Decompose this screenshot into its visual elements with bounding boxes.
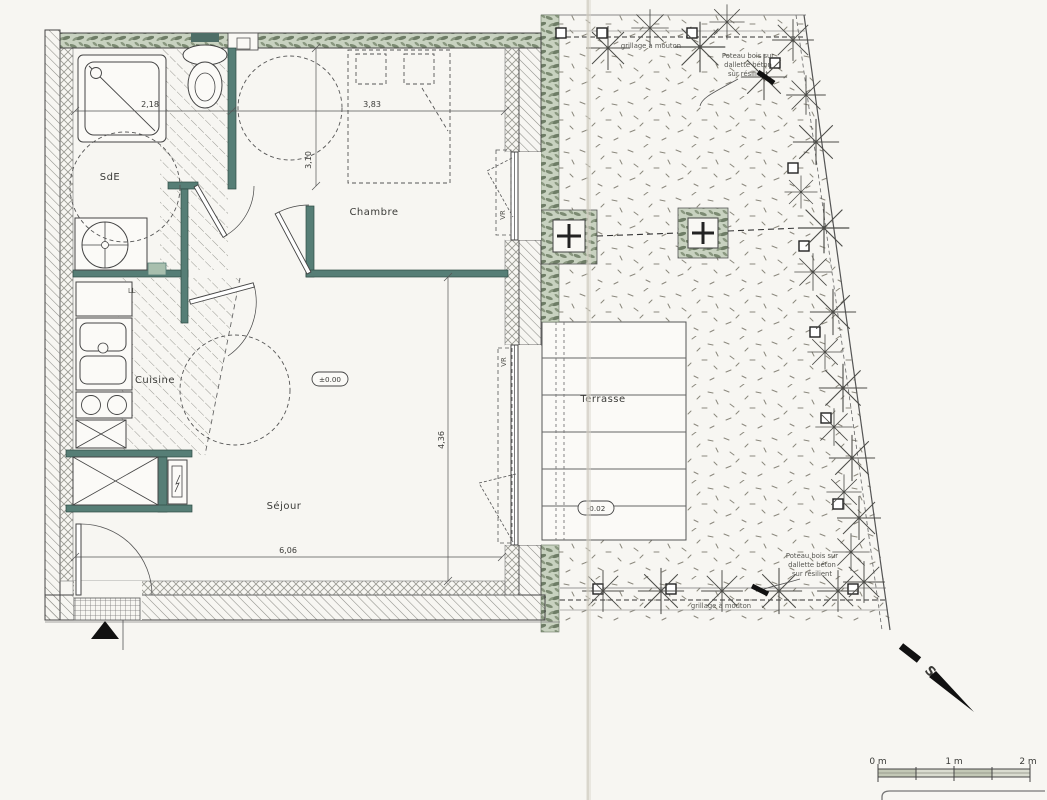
scale-label-2: 2 m (1019, 757, 1036, 767)
title-block-edge (882, 791, 1045, 800)
compass-tail (901, 646, 919, 660)
shutter-label-sejour: VR (500, 357, 508, 367)
dim-sde-width: 2,18 (141, 100, 159, 109)
duct-niche (228, 33, 258, 50)
scale-bar: 0 m 1 m 2 m (869, 757, 1045, 800)
wall-top (60, 33, 541, 48)
fence-label-bottom: grillage à mouton (691, 602, 751, 610)
shutter-label-chambre: VR (499, 210, 507, 220)
fence-label-top: grillage à mouton (621, 42, 681, 50)
fixture-label-washing-machine: LL (128, 287, 136, 295)
svg-text:sur résilient: sur résilient (792, 570, 832, 578)
svg-text:dallette béton: dallette béton (724, 61, 772, 69)
hedge-strip-upper (541, 15, 559, 322)
room-label-sde: SdE (100, 172, 121, 183)
entrance-arrow (91, 621, 119, 639)
level-value-interior: ±0.00 (319, 375, 341, 384)
scan-fold-line (586, 0, 591, 800)
dim-sejour-depth: 4,36 (437, 431, 446, 449)
scale-label-1: 1 m (945, 757, 962, 767)
post-planter-right (678, 208, 728, 258)
room-label-cuisine: Cuisine (135, 375, 175, 386)
level-marker-terrace: -0.02 (578, 501, 614, 515)
duct-block (148, 263, 166, 275)
electrical-panel (168, 460, 187, 504)
level-marker-interior: ±0.00 (312, 372, 348, 386)
entrance-door (74, 524, 152, 650)
svg-text:Poteau bois sur: Poteau bois sur (786, 552, 838, 560)
window-sejour (479, 345, 541, 545)
wall-left-outer (45, 30, 60, 620)
room-label-sejour: Séjour (267, 500, 302, 512)
room-label-chambre: Chambre (349, 207, 398, 218)
compass-needle (929, 671, 974, 712)
svg-text:Poteau bois sur: Poteau bois sur (722, 52, 774, 60)
bed (348, 50, 450, 183)
wc-cistern (191, 33, 219, 42)
apartment: ±0.00 -0.02 (45, 30, 614, 650)
kitchen-hatched-zone (115, 278, 240, 455)
svg-text:dallette béton: dallette béton (788, 561, 836, 569)
kitchen-unit (76, 282, 132, 448)
dim-chambre-depth: 3,10 (304, 151, 313, 169)
wall-left-insulation (60, 48, 73, 581)
shower (78, 55, 166, 142)
window-chambre (487, 150, 541, 240)
closet (73, 457, 158, 505)
dim-chambre-width: 3,83 (363, 100, 381, 109)
floor-plan-drawing: ±0.00 -0.02 SdE Chambre Cuisine Séjour T… (0, 0, 1047, 800)
page-background: ±0.00 -0.02 SdE Chambre Cuisine Séjour T… (0, 0, 1047, 800)
dim-sejour-width: 6,06 (279, 546, 297, 555)
garden (541, 4, 890, 632)
compass: S (901, 646, 974, 712)
